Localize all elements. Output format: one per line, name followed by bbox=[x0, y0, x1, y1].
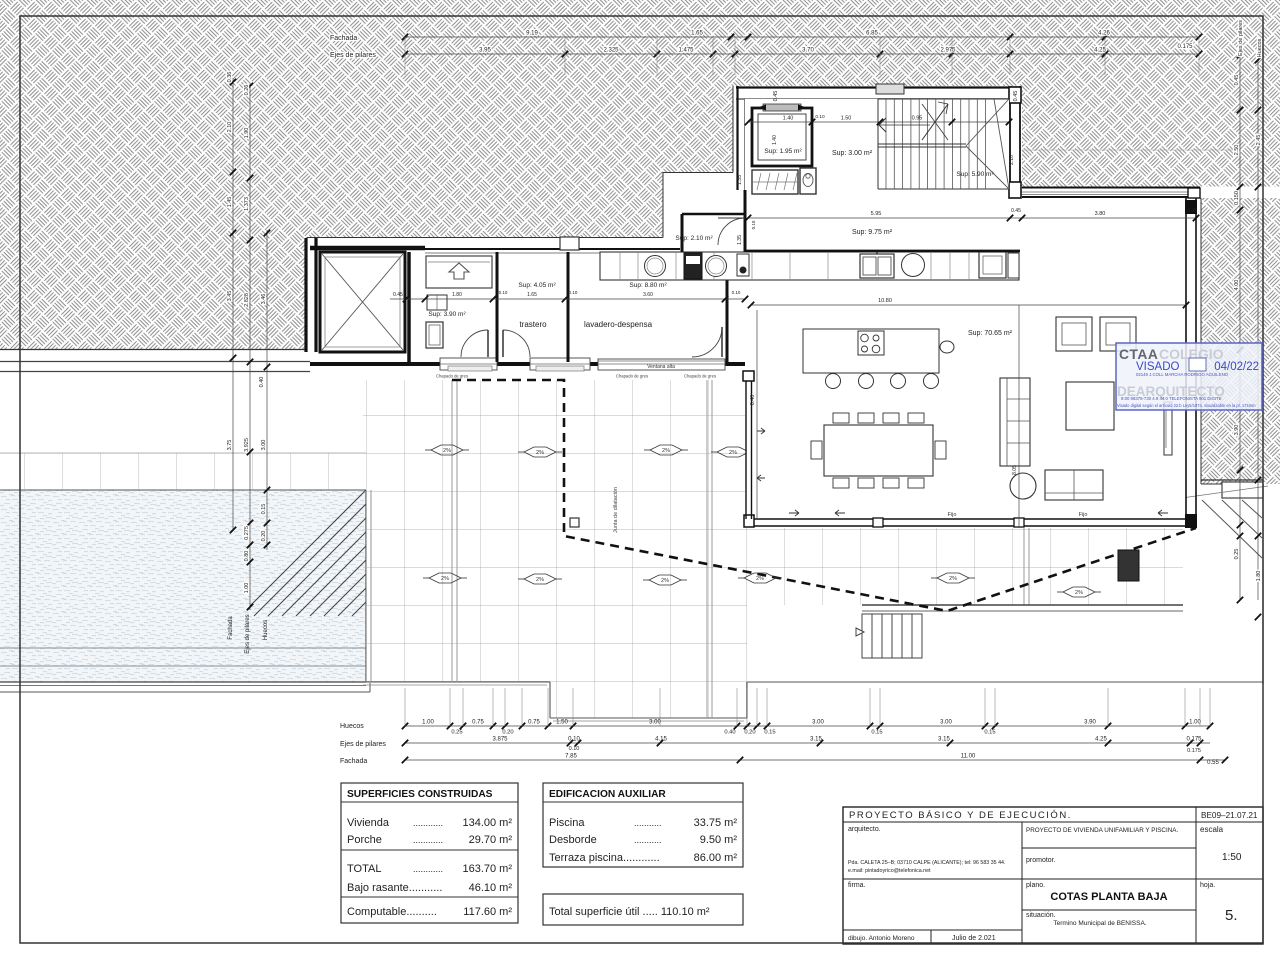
svg-text:0.20: 0.20 bbox=[261, 531, 267, 542]
svg-text:PROYECTO BÁSICO Y DE EJECU: PROYECTO BÁSICO Y DE EJECUCIÓN. bbox=[849, 810, 1072, 821]
svg-text:Fachada: Fachada bbox=[330, 35, 357, 42]
svg-text:1.40: 1.40 bbox=[783, 116, 794, 122]
svg-text:0.40: 0.40 bbox=[724, 730, 735, 736]
svg-text:Ventana alta: Ventana alta bbox=[647, 364, 675, 370]
svg-text:Sup: 3.00 m²: Sup: 3.00 m² bbox=[832, 150, 873, 157]
svg-text:Sup: 8.80 m²: Sup: 8.80 m² bbox=[629, 282, 667, 289]
svg-text:02149 J.COLL MARCHA RODRIGO AG: 02149 J.COLL MARCHA RODRIGO AGUILENO bbox=[1136, 372, 1229, 377]
svg-text:10.80: 10.80 bbox=[878, 298, 892, 304]
svg-text:0.45: 0.45 bbox=[1234, 75, 1240, 86]
svg-text:8.05: 8.05 bbox=[1012, 465, 1018, 475]
svg-text:1.50: 1.50 bbox=[556, 720, 568, 726]
svg-text:1.35: 1.35 bbox=[737, 175, 743, 185]
svg-text:7.85: 7.85 bbox=[565, 754, 577, 760]
svg-text:Sup: 4.05 m²: Sup: 4.05 m² bbox=[518, 282, 556, 289]
svg-text:CTAA: CTAA bbox=[1119, 347, 1158, 362]
svg-text:1:50: 1:50 bbox=[1222, 852, 1242, 863]
svg-text:arquitecto.: arquitecto. bbox=[848, 826, 881, 833]
svg-text:dibujo. Antonio Moreno: dibujo. Antonio Moreno bbox=[848, 935, 915, 942]
svg-text:Junta de dilatación: Junta de dilatación bbox=[613, 487, 619, 533]
svg-text:0.10: 0.10 bbox=[569, 290, 578, 295]
svg-text:Huecos: Huecos bbox=[263, 620, 269, 640]
svg-text:2%: 2% bbox=[443, 448, 451, 454]
svg-text:............: ............ bbox=[413, 818, 443, 828]
svg-text:4.25: 4.25 bbox=[1095, 737, 1107, 743]
svg-text:Huecos: Huecos bbox=[1257, 38, 1263, 57]
svg-text:1.00: 1.00 bbox=[422, 720, 434, 726]
svg-text:3.925: 3.925 bbox=[244, 438, 250, 452]
svg-text:0.150: 0.150 bbox=[1234, 191, 1240, 205]
svg-text:0.75: 0.75 bbox=[472, 720, 484, 726]
svg-text:Fijo: Fijo bbox=[948, 512, 957, 518]
svg-text:3.15: 3.15 bbox=[938, 737, 950, 743]
svg-text:9.50 m²: 9.50 m² bbox=[700, 834, 738, 846]
svg-text:0.175: 0.175 bbox=[1186, 737, 1202, 743]
svg-text:2.10: 2.10 bbox=[1009, 155, 1015, 165]
svg-text:3.45: 3.45 bbox=[227, 291, 233, 302]
svg-text:0.15: 0.15 bbox=[871, 730, 882, 736]
svg-text:Porche: Porche bbox=[347, 834, 382, 846]
svg-text:0.20: 0.20 bbox=[502, 730, 513, 736]
svg-text:............: ............ bbox=[413, 835, 443, 845]
svg-text:3.46: 3.46 bbox=[261, 294, 267, 305]
svg-text:Desborde: Desborde bbox=[549, 834, 597, 846]
svg-text:0.10: 0.10 bbox=[499, 290, 508, 295]
svg-text:1.65: 1.65 bbox=[691, 31, 703, 37]
svg-text:0.175: 0.175 bbox=[1177, 44, 1193, 50]
svg-text:Ejes de pilares: Ejes de pilares bbox=[245, 614, 251, 653]
svg-text:0.95: 0.95 bbox=[912, 116, 923, 122]
svg-text:29.70 m²: 29.70 m² bbox=[469, 834, 513, 846]
svg-text:COTAS PLANTA BAJA: COTAS PLANTA BAJA bbox=[1050, 891, 1167, 903]
svg-text:1.45: 1.45 bbox=[227, 197, 233, 208]
svg-text:4.15: 4.15 bbox=[655, 737, 667, 743]
svg-text:0.45: 0.45 bbox=[393, 292, 403, 298]
svg-text:11.00: 11.00 bbox=[961, 754, 976, 760]
svg-text:2.325: 2.325 bbox=[603, 48, 619, 54]
svg-text:0.45: 0.45 bbox=[1011, 208, 1021, 214]
svg-text:firma.: firma. bbox=[848, 882, 866, 889]
svg-text:4.26: 4.26 bbox=[1098, 31, 1110, 37]
svg-text:0.25: 0.25 bbox=[1234, 549, 1240, 560]
svg-text:0.40: 0.40 bbox=[259, 377, 265, 388]
svg-text:Ejes de pilares: Ejes de pilares bbox=[1238, 20, 1244, 56]
svg-text:0.75: 0.75 bbox=[528, 720, 540, 726]
svg-text:0.10: 0.10 bbox=[569, 746, 580, 752]
svg-text:............: ............ bbox=[413, 864, 443, 874]
svg-text:Sup: 3.90 m²: Sup: 3.90 m² bbox=[428, 311, 466, 318]
svg-text:1.65: 1.65 bbox=[527, 292, 537, 298]
svg-text:1.373: 1.373 bbox=[244, 197, 250, 211]
svg-text:0.20: 0.20 bbox=[744, 730, 755, 736]
svg-text:e.mail: pintadoyrico@telefoni: e.mail: pintadoyrico@telefonica.net bbox=[848, 868, 931, 874]
svg-text:163.70 m²: 163.70 m² bbox=[462, 863, 512, 875]
svg-text:Chapado de gres: Chapado de gres bbox=[684, 374, 716, 379]
svg-text:117.60 m²: 117.60 m² bbox=[463, 906, 512, 918]
svg-text:0.45: 0.45 bbox=[773, 91, 779, 102]
svg-text:1.00: 1.00 bbox=[244, 583, 250, 594]
svg-text:2%: 2% bbox=[661, 578, 669, 584]
svg-text:trastero: trastero bbox=[519, 320, 547, 329]
svg-text:1.80: 1.80 bbox=[452, 292, 462, 298]
svg-text:2%: 2% bbox=[729, 450, 737, 456]
svg-text:Sup: 9.75 m²: Sup: 9.75 m² bbox=[852, 229, 893, 236]
svg-text:2.828: 2.828 bbox=[244, 293, 250, 307]
svg-text:3.00: 3.00 bbox=[812, 720, 824, 726]
svg-text:escala: escala bbox=[1200, 825, 1224, 834]
svg-text:0.36: 0.36 bbox=[227, 72, 233, 83]
svg-text:Fijo: Fijo bbox=[1079, 512, 1088, 518]
svg-text:Sup: 70.65 m²: Sup: 70.65 m² bbox=[968, 330, 1013, 337]
svg-text:2%: 2% bbox=[1075, 590, 1083, 596]
svg-text:1.40: 1.40 bbox=[772, 135, 778, 145]
svg-text:3.00: 3.00 bbox=[649, 720, 661, 726]
svg-text:Total superficie útil ..... 11: Total superficie útil ..... 110.10 m² bbox=[549, 906, 710, 918]
svg-text:Termino Municipal de BENISS: Termino Municipal de BENISSA. bbox=[1053, 920, 1146, 927]
svg-text:6.40: 6.40 bbox=[750, 395, 756, 406]
svg-text:86.00 m²: 86.00 m² bbox=[694, 852, 738, 864]
svg-text:2.10: 2.10 bbox=[227, 122, 233, 133]
svg-text:3.80: 3.80 bbox=[1095, 211, 1106, 217]
svg-text:0.10: 0.10 bbox=[751, 220, 756, 229]
svg-text:Chapado de gres: Chapado de gres bbox=[436, 374, 468, 379]
svg-text:4.00: 4.00 bbox=[1234, 280, 1240, 291]
svg-text:46.10 m²: 46.10 m² bbox=[469, 882, 513, 894]
svg-text:0.45: 0.45 bbox=[1013, 91, 1019, 102]
svg-text:2%: 2% bbox=[536, 577, 544, 583]
svg-text:Piscina: Piscina bbox=[549, 817, 585, 829]
svg-text:Pda. CALETA 25–B; 03710 CA: Pda. CALETA 25–B; 03710 CALPE (ALICANTE)… bbox=[848, 860, 1005, 866]
svg-text:Julio de 2.021: Julio de 2.021 bbox=[952, 935, 996, 942]
svg-text:2%: 2% bbox=[662, 448, 670, 454]
svg-text:2.975: 2.975 bbox=[940, 48, 956, 54]
svg-text:5.: 5. bbox=[1225, 907, 1238, 924]
svg-text:0.15: 0.15 bbox=[261, 504, 267, 515]
svg-text:TOTAL: TOTAL bbox=[347, 863, 381, 875]
svg-text:4.25: 4.25 bbox=[1094, 48, 1106, 54]
svg-text:3.00: 3.00 bbox=[940, 720, 952, 726]
svg-text:Fachada: Fachada bbox=[340, 758, 367, 765]
svg-text:0.10: 0.10 bbox=[568, 737, 580, 743]
svg-text:0.26: 0.26 bbox=[244, 85, 250, 96]
svg-text:6.85: 6.85 bbox=[866, 31, 878, 37]
svg-text:0.55: 0.55 bbox=[1207, 760, 1219, 766]
svg-text:3.875: 3.875 bbox=[492, 737, 508, 743]
svg-text:2%: 2% bbox=[536, 450, 544, 456]
svg-text:1.90: 1.90 bbox=[244, 128, 250, 139]
svg-text:Huecos: Huecos bbox=[340, 723, 364, 730]
svg-text:hoja.: hoja. bbox=[1200, 882, 1215, 889]
svg-text:0.15: 0.15 bbox=[764, 730, 775, 736]
svg-text:PROYECTO DE VIVIENDA UNIFAM: PROYECTO DE VIVIENDA UNIFAMILIAR Y PISCI… bbox=[1026, 827, 1178, 834]
svg-text:3.75: 3.75 bbox=[227, 440, 233, 451]
svg-text:134.00 m²: 134.00 m² bbox=[462, 817, 512, 829]
svg-text:Chapado de gres: Chapado de gres bbox=[616, 374, 648, 379]
svg-text:3.90: 3.90 bbox=[1234, 425, 1240, 436]
svg-text:2%: 2% bbox=[756, 576, 764, 582]
svg-text:Sup: 1.95 m²: Sup: 1.95 m² bbox=[764, 148, 802, 155]
svg-text:...........: ........... bbox=[634, 818, 662, 828]
svg-text:0.25: 0.25 bbox=[451, 730, 462, 736]
svg-text:0.10: 0.10 bbox=[732, 290, 741, 295]
svg-text:3.70: 3.70 bbox=[802, 48, 814, 54]
svg-text:1.50: 1.50 bbox=[841, 116, 852, 122]
svg-text:3.95: 3.95 bbox=[479, 48, 491, 54]
svg-text:SUPERFICIES CONSTRUIDAS: SUPERFICIES CONSTRUIDAS bbox=[347, 789, 493, 800]
svg-text:plano.: plano. bbox=[1026, 882, 1045, 889]
svg-text:Computable..........: Computable.......... bbox=[347, 906, 437, 918]
svg-text:0.45: 0.45 bbox=[1187, 208, 1197, 214]
svg-text:2.50: 2.50 bbox=[1234, 145, 1240, 156]
svg-text:9.19: 9.19 bbox=[526, 31, 538, 37]
svg-text:1.475: 1.475 bbox=[678, 48, 694, 54]
svg-text:EDIFICACION AUXILIAR: EDIFICACION AUXILIAR bbox=[549, 789, 666, 800]
svg-text:BE09–21.07.21: BE09–21.07.21 bbox=[1201, 811, 1258, 820]
svg-text:3.60: 3.60 bbox=[643, 292, 653, 298]
svg-text:Ejes de pilares: Ejes de pilares bbox=[330, 52, 376, 59]
svg-text:2.45: 2.45 bbox=[1256, 135, 1262, 146]
svg-text:Visado digital según el artícu: Visado digital según el artículo 22.b Le… bbox=[1117, 403, 1256, 408]
svg-text:1.00: 1.00 bbox=[1189, 720, 1201, 726]
svg-text:Fachada: Fachada bbox=[228, 616, 234, 640]
svg-text:2%: 2% bbox=[441, 576, 449, 582]
svg-text:1.35: 1.35 bbox=[737, 235, 743, 245]
svg-text:promotor.: promotor. bbox=[1026, 857, 1056, 864]
svg-text:3.00: 3.00 bbox=[261, 440, 267, 451]
svg-text:0.175: 0.175 bbox=[1187, 748, 1201, 754]
svg-text:8:00 98375-730 4.9 44.0: 8:00 98375-730 4.9 44.0 TELEFONISTA 901 … bbox=[1121, 396, 1222, 401]
svg-text:0.15: 0.15 bbox=[984, 730, 995, 736]
svg-text:3.15: 3.15 bbox=[810, 737, 822, 743]
svg-text:Bajo rasante...........: Bajo rasante........... bbox=[347, 882, 442, 894]
svg-text:Sup: 5.90 m²: Sup: 5.90 m² bbox=[956, 171, 994, 178]
svg-text:33.75 m²: 33.75 m² bbox=[694, 817, 738, 829]
svg-text:3.90: 3.90 bbox=[1084, 720, 1096, 726]
svg-text:1.80: 1.80 bbox=[1256, 571, 1262, 582]
svg-text:Vivienda: Vivienda bbox=[347, 817, 390, 829]
svg-text:0.275: 0.275 bbox=[244, 526, 250, 540]
svg-text:Terraza piscina............: Terraza piscina............ bbox=[549, 852, 660, 864]
svg-text:0.80: 0.80 bbox=[244, 551, 250, 562]
svg-text:lavadero-despensa: lavadero-despensa bbox=[584, 320, 653, 329]
svg-text:2%: 2% bbox=[949, 576, 957, 582]
svg-text:5.95: 5.95 bbox=[871, 211, 882, 217]
svg-text:situación.: situación. bbox=[1026, 912, 1056, 919]
svg-text:0.10: 0.10 bbox=[815, 114, 825, 120]
svg-text:Ejes de pilares: Ejes de pilares bbox=[340, 741, 386, 748]
svg-text:...........: ........... bbox=[634, 835, 662, 845]
